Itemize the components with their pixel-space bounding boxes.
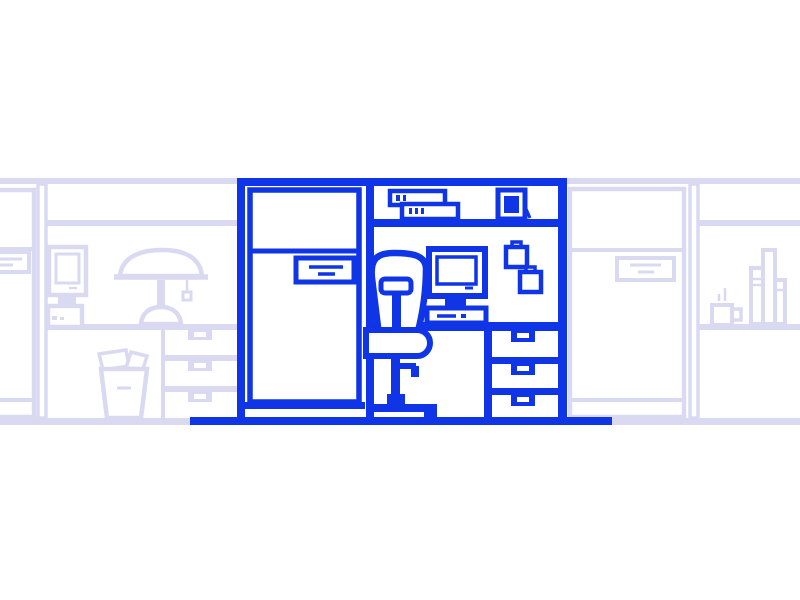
left-wall-post	[38, 184, 46, 418]
main-cubicle	[190, 178, 612, 425]
cubicle-left-post	[237, 178, 245, 418]
drawer-beam-1	[492, 357, 558, 364]
cubicle-right-post	[558, 178, 567, 418]
box-lower-dot-1	[409, 208, 412, 214]
mug-body	[712, 305, 732, 325]
left-shelf-line	[46, 220, 237, 226]
desktop-computer	[427, 249, 486, 323]
fridge-label	[296, 258, 354, 282]
keyboard-base	[427, 308, 486, 323]
fridge-bottom-beam	[245, 402, 365, 409]
main-floor-line	[190, 417, 612, 425]
right-fridge-label	[617, 258, 674, 280]
left-drawer-unit	[161, 330, 237, 418]
left-drawer-handle-slot-1	[194, 332, 206, 337]
lamp-base	[141, 307, 181, 324]
drawer-handle-slot-2	[517, 366, 529, 371]
box-upper-dot-2	[403, 195, 406, 201]
illustration-stage	[0, 0, 800, 600]
left-drawer-beam-2	[161, 386, 237, 392]
underdesk-divider	[484, 331, 492, 417]
fridge-body	[250, 190, 359, 402]
drawer-handle-slot-1	[517, 333, 529, 338]
mug-handle	[732, 309, 741, 320]
left-base-dot-1	[52, 316, 57, 320]
right-fridge-body	[570, 189, 684, 417]
desk-lamp	[114, 250, 208, 324]
trash-paper-2	[126, 352, 147, 369]
left-drawer-handle-slot-3	[194, 394, 206, 399]
left-desktop-computer	[48, 247, 86, 327]
drawer-unit	[484, 331, 558, 417]
box-upper-dot-1	[396, 195, 400, 201]
chair-foot-mount	[387, 394, 405, 404]
chair-seat	[366, 330, 430, 356]
left-drawer-edge	[161, 330, 165, 418]
right-top-beam	[560, 178, 800, 184]
left-neighbor-cubicle	[0, 178, 242, 418]
right-neighbor-cubicle	[560, 178, 800, 418]
right-wall-post	[690, 184, 698, 418]
left-partial-fridge-label	[0, 252, 29, 272]
note-2	[520, 272, 541, 292]
overhead-shelf	[374, 190, 558, 227]
drawer-handle-slot-3	[517, 397, 529, 402]
lamp-pull-tab	[183, 292, 191, 300]
pinned-notes	[506, 242, 541, 292]
picture-frame-photo	[504, 196, 519, 213]
refrigerator	[245, 190, 365, 409]
left-drawer-handle-slot-2	[194, 363, 206, 368]
chair-lever-end	[411, 366, 419, 377]
left-base-dot-2	[60, 317, 64, 320]
chair-caster-foot	[424, 410, 437, 418]
lamp-shade	[120, 250, 202, 276]
note-1	[506, 247, 527, 267]
chair-armrest-bar	[381, 279, 411, 293]
box-lower-dot-2	[415, 208, 418, 214]
shelf-beam	[374, 219, 558, 227]
trash-can-body	[101, 369, 147, 418]
chair-column	[391, 356, 400, 394]
box-lower-dot-3	[421, 208, 424, 214]
trash-can	[99, 350, 147, 418]
book-right	[775, 280, 785, 324]
right-shelf-band	[698, 220, 800, 226]
cubicle-top-beam	[237, 178, 567, 186]
drawer-beam-2	[492, 388, 558, 395]
coffee-mug	[712, 288, 741, 325]
left-partial-fridge-body	[0, 190, 34, 417]
left-drawer-beam-1	[161, 355, 237, 361]
books	[751, 250, 785, 324]
chair-armrest-stem	[392, 293, 401, 330]
office-workspace-illustration	[0, 0, 800, 600]
keyboard-dot	[461, 314, 466, 318]
